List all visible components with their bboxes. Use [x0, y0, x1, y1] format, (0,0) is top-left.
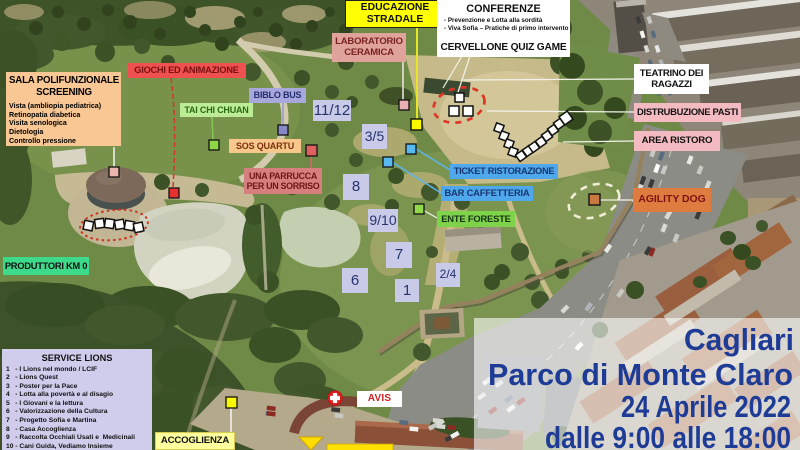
svg-text:24 Aprile 2022: 24 Aprile 2022	[621, 390, 791, 424]
svg-text:Parco di Monte Claro: Parco di Monte Claro	[488, 358, 793, 392]
svg-text:dalle 9:00 alle 18:00: dalle 9:00 alle 18:00	[545, 421, 791, 450]
svg-text:Cagliari: Cagliari	[684, 323, 794, 357]
